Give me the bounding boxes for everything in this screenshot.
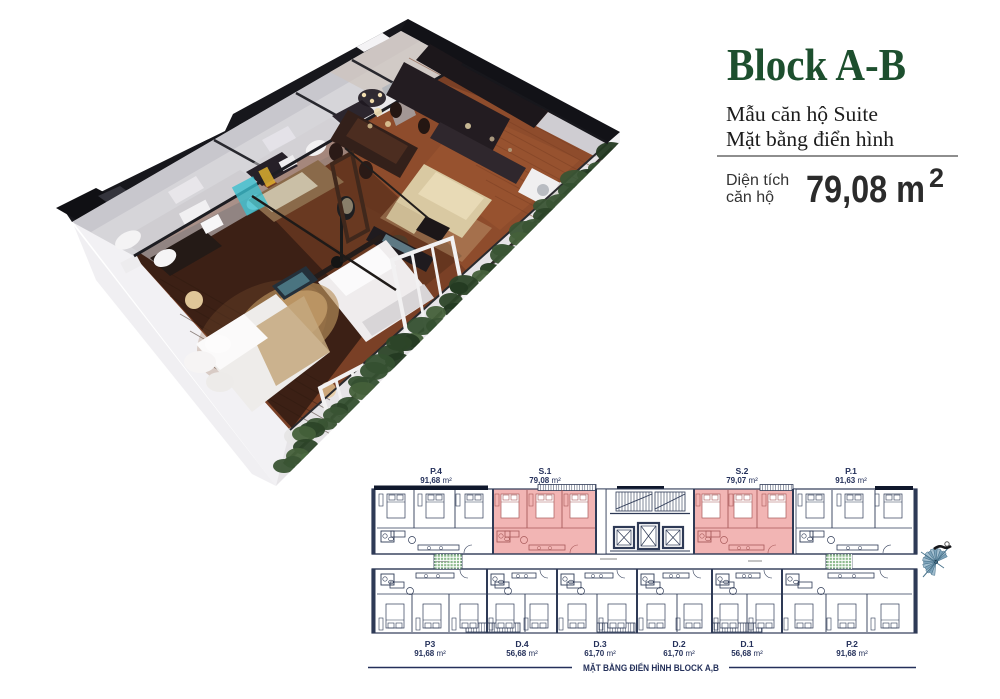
svg-text:91,68 m²: 91,68 m² [420, 476, 452, 485]
svg-text:61,70 m²: 61,70 m² [584, 649, 616, 658]
svg-text:79,07 m²: 79,07 m² [726, 476, 758, 485]
svg-text:D.3: D.3 [593, 639, 607, 649]
svg-text:D.1: D.1 [740, 639, 754, 649]
svg-text:91,68 m²: 91,68 m² [836, 649, 868, 658]
svg-text:91,68 m²: 91,68 m² [414, 649, 446, 658]
svg-text:56,68 m²: 56,68 m² [731, 649, 763, 658]
svg-text:P.4: P.4 [430, 466, 442, 476]
svg-text:D.2: D.2 [672, 639, 686, 649]
svg-text:79,08 m: 79,08 m [806, 169, 925, 211]
svg-text:S.2: S.2 [736, 466, 749, 476]
svg-text:Block A-B: Block A-B [727, 40, 906, 90]
svg-text:Diện tích: Diện tích [726, 172, 789, 189]
svg-text:61,70 m²: 61,70 m² [663, 649, 695, 658]
svg-text:P3: P3 [425, 639, 436, 649]
svg-text:79,08 m²: 79,08 m² [529, 476, 561, 485]
svg-text:2: 2 [929, 163, 944, 193]
svg-text:P.2: P.2 [846, 639, 858, 649]
svg-text:91,63 m²: 91,63 m² [835, 476, 867, 485]
svg-text:56,68 m²: 56,68 m² [506, 649, 538, 658]
svg-text:D.4: D.4 [515, 639, 529, 649]
svg-text:Mẫu căn hộ Suite: Mẫu căn hộ Suite [726, 102, 878, 126]
svg-text:P.1: P.1 [845, 466, 857, 476]
svg-text:căn hộ: căn hộ [726, 189, 774, 206]
svg-text:Mặt bằng điển hình: Mặt bằng điển hình [726, 127, 895, 151]
svg-text:S.1: S.1 [539, 466, 552, 476]
svg-text:MẶT BẰNG ĐIỂN HÌNH BLOCK A,B: MẶT BẰNG ĐIỂN HÌNH BLOCK A,B [583, 662, 719, 673]
